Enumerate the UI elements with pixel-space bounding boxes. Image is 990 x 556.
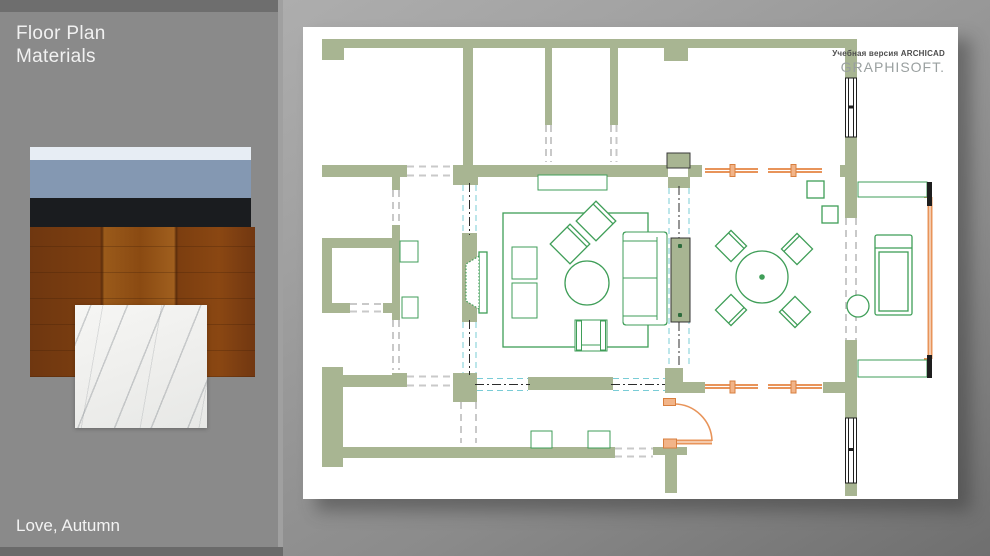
archicad-watermark: Учебная версия ARCHICAD GRAPHISOFT.: [832, 49, 945, 75]
opening-bath-door: [460, 402, 477, 443]
opening-hall-west-1: [392, 190, 400, 225]
entry-door: [664, 399, 713, 449]
dining-chair-se: [779, 296, 810, 327]
sliding-partition-living-dining: [669, 186, 690, 368]
furniture-living-room: [466, 175, 667, 351]
daybed: [875, 235, 912, 315]
sliding-door-living-sw: [463, 320, 476, 375]
coffee-table: [565, 261, 609, 305]
dining-table-center: [759, 274, 765, 280]
console-table: [538, 175, 607, 190]
materials-panel: Floor Plan Materials Love, Autumn: [0, 0, 283, 556]
opening-closet-door: [350, 303, 383, 313]
dining-chair-sw: [715, 294, 746, 325]
sofa: [623, 232, 667, 325]
opening-entry: [615, 447, 653, 458]
floor-plan-drawing: [303, 27, 958, 499]
balcony-cabinet-top: [858, 182, 927, 197]
caption: Love, Autumn: [16, 516, 120, 536]
sliding-door-hall-south-2: [611, 379, 665, 391]
lounge-chair-1: [550, 224, 590, 264]
sliding-door-living-nw: [463, 183, 476, 235]
swatch-blue-gray-paint: [30, 160, 251, 198]
corner-mark-bottom: [927, 355, 932, 378]
balcony-glazing: [924, 197, 932, 359]
panel-right-edge: [278, 0, 283, 556]
hall-cabinet-4: [588, 431, 610, 448]
swatch-light-laminate: [30, 147, 251, 160]
lounge-chair-2: [576, 201, 616, 241]
opening-room3-door: [610, 125, 618, 162]
watermark-line-1: Учебная версия ARCHICAD: [832, 49, 945, 58]
opening-hall-lower: [407, 375, 453, 387]
opening-hall-top: [407, 165, 453, 177]
window-east-lower: [846, 418, 857, 483]
watermark-line-2: GRAPHISOFT.: [832, 59, 945, 75]
pocket-door-panel: [671, 238, 690, 322]
slide: Floor Plan Materials Love, Autumn: [0, 0, 990, 556]
opening-hall-west-2: [392, 320, 400, 370]
ottoman-2: [512, 283, 537, 318]
opening-dining-east: [845, 218, 857, 340]
title-line-2: Materials: [16, 45, 106, 68]
side-cabinet-2: [822, 206, 838, 223]
round-side-table: [847, 295, 869, 317]
swatch-black-accent: [30, 198, 251, 227]
swatch-marble-tile: [75, 305, 207, 428]
side-cabinet-1: [807, 181, 824, 198]
hall-cabinet-3: [531, 431, 552, 448]
floor-plan-paper: Учебная версия ARCHICAD GRAPHISOFT.: [303, 27, 958, 499]
page-title: Floor Plan Materials: [16, 22, 106, 68]
sliding-door-hall-south-1: [475, 379, 530, 391]
hall-cabinet-1: [400, 241, 418, 262]
hall-cabinet-2: [402, 297, 418, 318]
title-line-1: Floor Plan: [16, 22, 106, 45]
ottoman-1: [512, 247, 537, 279]
pocket-door-park-block: [667, 153, 690, 168]
panel-bottom-strip: [0, 547, 283, 556]
furniture-balcony: [858, 182, 932, 378]
balcony-cabinet-bottom: [858, 360, 927, 377]
sliding-door-dining-south: [705, 381, 822, 393]
panel-top-strip: [0, 0, 283, 12]
opening-room2-door: [545, 125, 552, 162]
dining-chair-nw: [715, 230, 746, 261]
dining-chair-ne: [781, 233, 812, 264]
sliding-door-dining-north: [705, 165, 822, 177]
window-east-upper: [846, 78, 857, 137]
corner-mark-top: [927, 182, 932, 206]
armchair: [575, 320, 607, 351]
